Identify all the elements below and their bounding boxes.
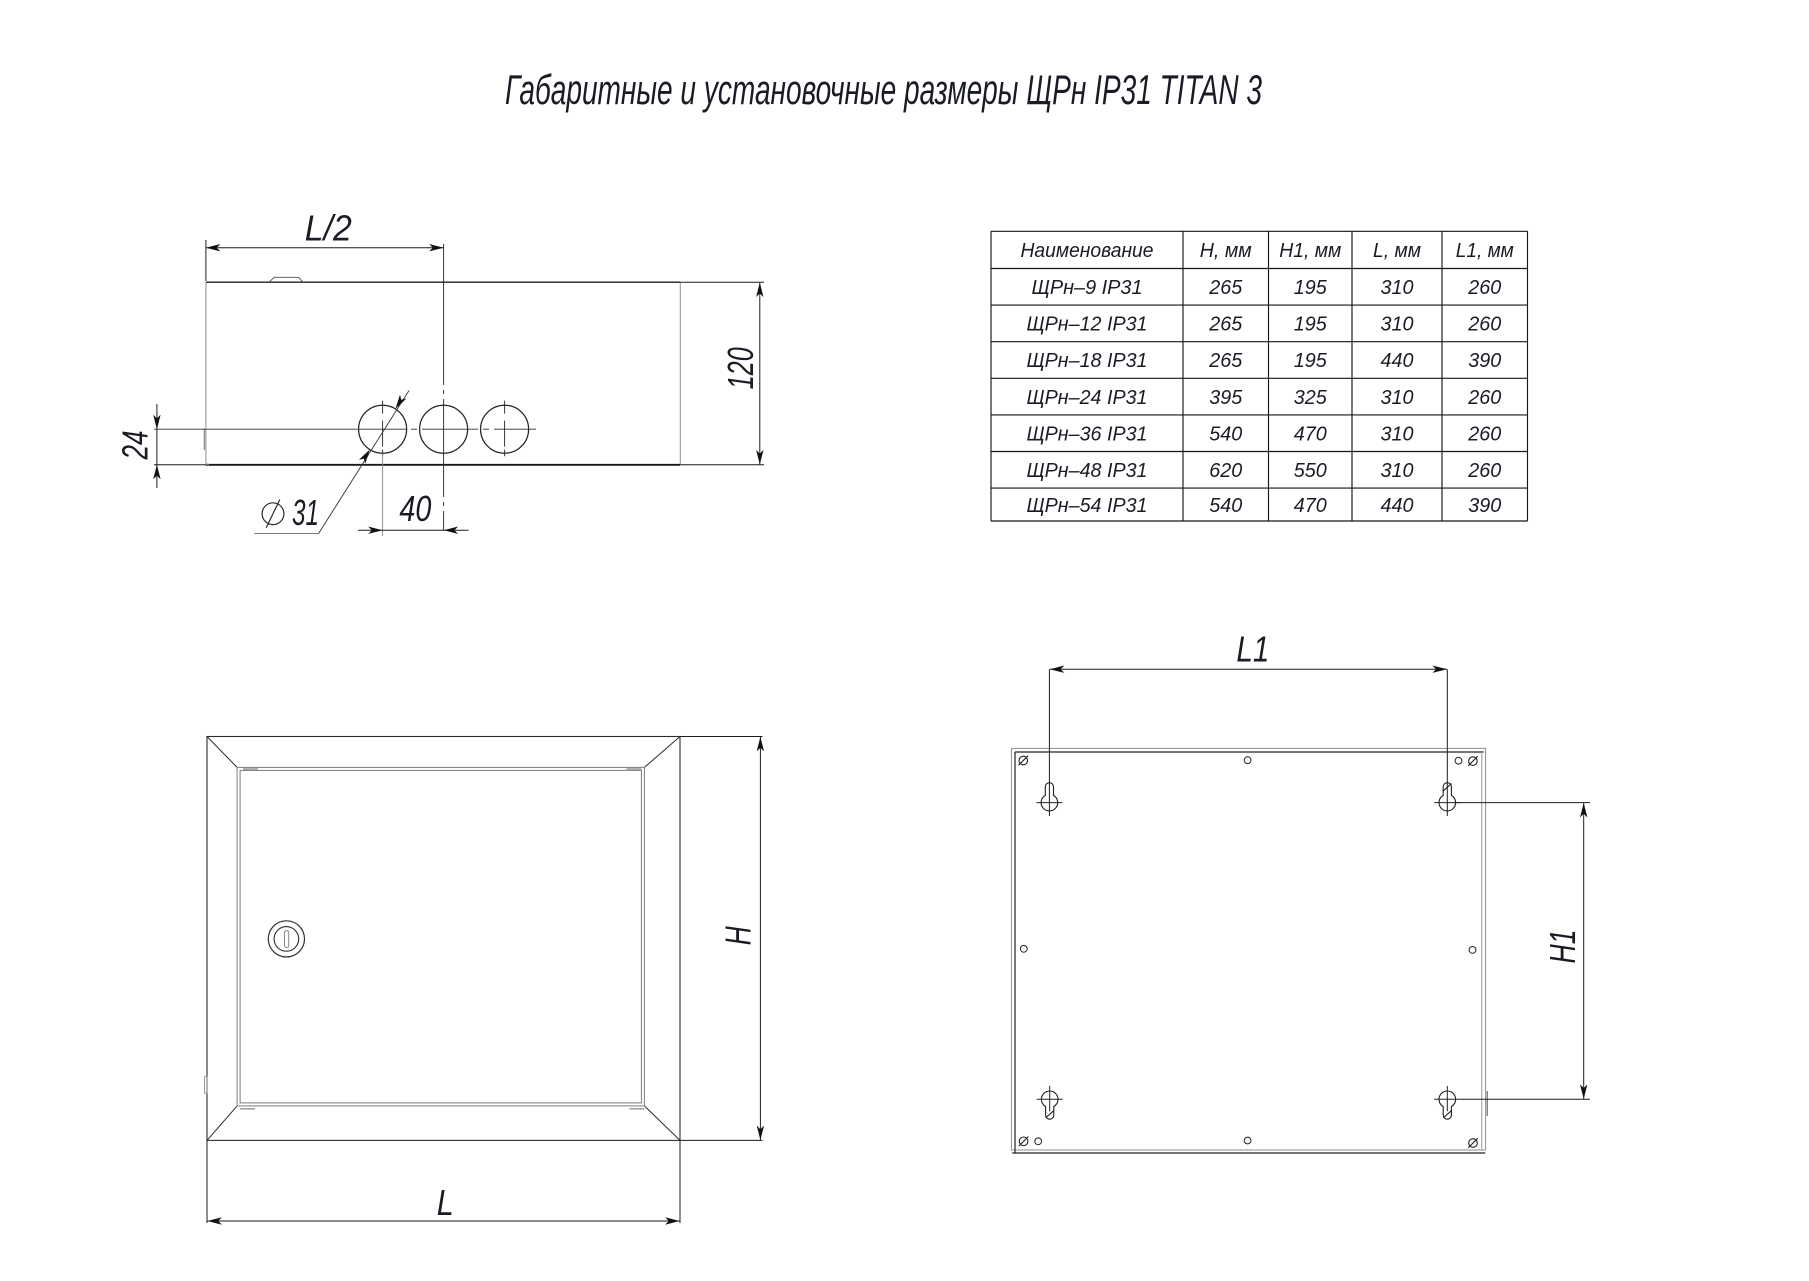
svg-text:440: 440 — [1381, 495, 1414, 517]
svg-text:265: 265 — [1208, 350, 1243, 372]
svg-text:ЩРн–24 IP31: ЩРн–24 IP31 — [1027, 387, 1148, 409]
svg-text:H1: H1 — [1542, 930, 1583, 964]
svg-text:40: 40 — [399, 488, 431, 529]
svg-text:540: 540 — [1209, 423, 1242, 445]
svg-text:L/2: L/2 — [305, 208, 352, 249]
svg-text:L: L — [437, 1182, 454, 1223]
svg-text:H1, мм: H1, мм — [1279, 240, 1341, 262]
svg-text:540: 540 — [1209, 495, 1242, 517]
svg-text:395: 395 — [1209, 387, 1243, 409]
svg-text:24: 24 — [114, 431, 155, 461]
svg-text:310: 310 — [1381, 314, 1414, 336]
svg-text:L, мм: L, мм — [1373, 240, 1421, 262]
svg-text:310: 310 — [1381, 460, 1414, 482]
svg-text:ЩРн–9 IP31: ЩРн–9 IP31 — [1032, 277, 1143, 299]
svg-text:31: 31 — [292, 492, 319, 533]
svg-text:195: 195 — [1294, 314, 1328, 336]
svg-text:265: 265 — [1208, 314, 1243, 336]
svg-text:L1, мм: L1, мм — [1456, 240, 1514, 262]
svg-text:Габаритные и установочные разм: Габаритные и установочные размеры ЩРн IP… — [505, 66, 1262, 113]
svg-text:470: 470 — [1294, 495, 1327, 517]
svg-text:310: 310 — [1381, 423, 1414, 445]
svg-text:550: 550 — [1294, 460, 1327, 482]
svg-text:390: 390 — [1468, 495, 1501, 517]
svg-text:310: 310 — [1381, 277, 1414, 299]
svg-text:325: 325 — [1294, 387, 1328, 409]
svg-text:260: 260 — [1467, 314, 1501, 336]
svg-text:ЩРн–48 IP31: ЩРн–48 IP31 — [1027, 460, 1148, 482]
svg-text:ЩРн–12 IP31: ЩРн–12 IP31 — [1027, 314, 1148, 336]
svg-text:195: 195 — [1294, 350, 1328, 372]
svg-text:L1: L1 — [1236, 629, 1269, 670]
svg-text:120: 120 — [720, 347, 761, 389]
svg-text:390: 390 — [1468, 350, 1501, 372]
svg-text:ЩРн–54 IP31: ЩРн–54 IP31 — [1027, 495, 1148, 517]
svg-text:310: 310 — [1381, 387, 1414, 409]
svg-text:ЩРн–18 IP31: ЩРн–18 IP31 — [1027, 350, 1148, 372]
svg-text:440: 440 — [1381, 350, 1414, 372]
svg-text:H: H — [718, 926, 759, 946]
svg-text:470: 470 — [1294, 423, 1327, 445]
svg-text:265: 265 — [1208, 277, 1243, 299]
svg-text:260: 260 — [1467, 423, 1501, 445]
svg-text:Наименование: Наименование — [1021, 240, 1154, 262]
svg-text:620: 620 — [1209, 460, 1242, 482]
svg-text:260: 260 — [1467, 460, 1501, 482]
svg-text:ЩРн–36 IP31: ЩРн–36 IP31 — [1027, 423, 1148, 445]
svg-text:260: 260 — [1467, 387, 1501, 409]
svg-text:H, мм: H, мм — [1200, 240, 1252, 262]
svg-text:195: 195 — [1294, 277, 1328, 299]
svg-text:260: 260 — [1467, 277, 1501, 299]
